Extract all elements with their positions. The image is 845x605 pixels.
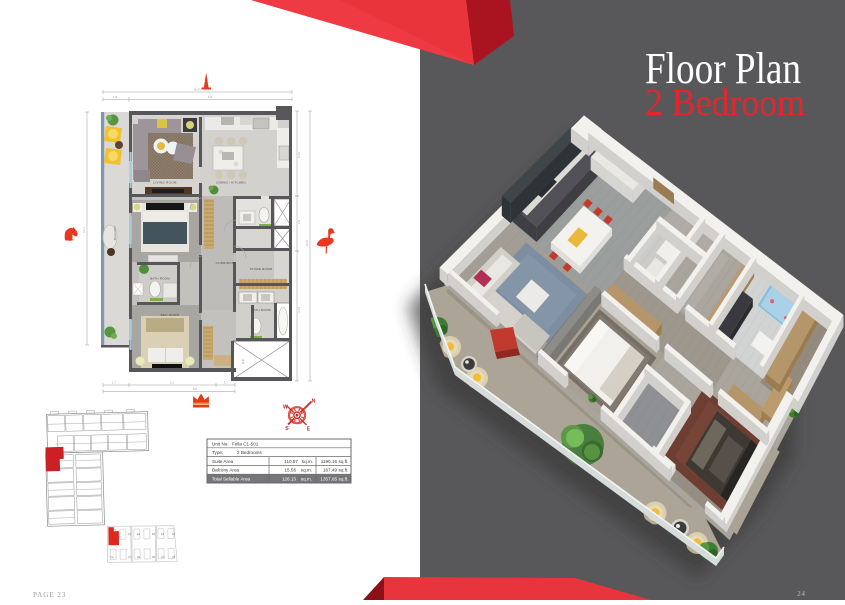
svg-text:126.13: 126.13: [282, 477, 296, 482]
svg-text:N: N: [312, 399, 316, 405]
svg-text:13.4: 13.4: [82, 227, 86, 233]
svg-text:1357.65: 1357.65: [320, 477, 337, 482]
svg-text:BATH ROOM: BATH ROOM: [150, 277, 170, 281]
svg-text:CORRIDOR: CORRIDOR: [216, 261, 235, 265]
svg-text:BATH ROOM: BATH ROOM: [251, 308, 271, 312]
svg-text:E: E: [307, 427, 311, 433]
svg-text:Fella C1-501: Fella C1-501: [232, 441, 259, 446]
svg-text:15.56: 15.56: [285, 468, 297, 473]
svg-text:1.7: 1.7: [224, 381, 229, 385]
svg-text:167.49: 167.49: [323, 468, 337, 473]
svg-text:STORE ROOM: STORE ROOM: [250, 267, 273, 271]
svg-text:110.57: 110.57: [284, 459, 298, 464]
svg-text:1190.16: 1190.16: [321, 459, 338, 464]
svg-text:2 Bedrooms: 2 Bedrooms: [237, 450, 262, 455]
svg-text:sq.m.: sq.m.: [302, 459, 313, 464]
svg-text:C3: C3: [128, 555, 132, 559]
svg-text:sq.ft.: sq.ft.: [339, 477, 349, 482]
svg-text:Balcony Area: Balcony Area: [212, 468, 240, 473]
svg-text:1.8: 1.8: [113, 95, 118, 99]
svg-text:sq.ft.: sq.ft.: [339, 468, 349, 473]
svg-text:BALCONY: BALCONY: [113, 226, 117, 240]
svg-text:6.15: 6.15: [297, 152, 301, 158]
svg-text:24: 24: [797, 589, 806, 598]
svg-text:W: W: [283, 405, 288, 411]
svg-text:sq.m.: sq.m.: [301, 468, 312, 473]
svg-text:5.1: 5.1: [170, 381, 175, 385]
svg-text:S: S: [285, 426, 289, 432]
svg-text:4.73: 4.73: [297, 307, 301, 313]
svg-text:18.21: 18.21: [193, 88, 201, 92]
svg-text:Type:: Type:: [212, 450, 223, 455]
svg-text:BED ROOM: BED ROOM: [154, 229, 173, 233]
svg-text:DINING / KITCHEN: DINING / KITCHEN: [216, 181, 245, 185]
svg-text:C2: C2: [128, 532, 132, 536]
svg-text:Unit No:: Unit No:: [212, 441, 229, 446]
svg-text:BED ROOM: BED ROOM: [161, 313, 180, 317]
svg-text:Suite Area: Suite Area: [212, 459, 234, 464]
svg-text:8.0: 8.0: [193, 387, 198, 391]
svg-text:sq.m.: sq.m.: [301, 477, 312, 482]
svg-text:LIVING ROOM: LIVING ROOM: [153, 181, 177, 185]
svg-text:C4: C4: [110, 555, 114, 559]
svg-text:A.C.: A.C.: [241, 358, 245, 364]
svg-text:sq.ft.: sq.ft.: [339, 459, 349, 464]
svg-text:6.9: 6.9: [208, 95, 213, 99]
svg-text:Total Sellable Area: Total Sellable Area: [212, 477, 250, 482]
svg-text:PAGE 23: PAGE 23: [33, 591, 66, 599]
svg-text:11.61: 11.61: [305, 239, 309, 247]
svg-text:2.8: 2.8: [297, 220, 301, 225]
svg-text:2 Bedroom: 2 Bedroom: [645, 82, 805, 124]
svg-text:1.7: 1.7: [112, 381, 117, 385]
